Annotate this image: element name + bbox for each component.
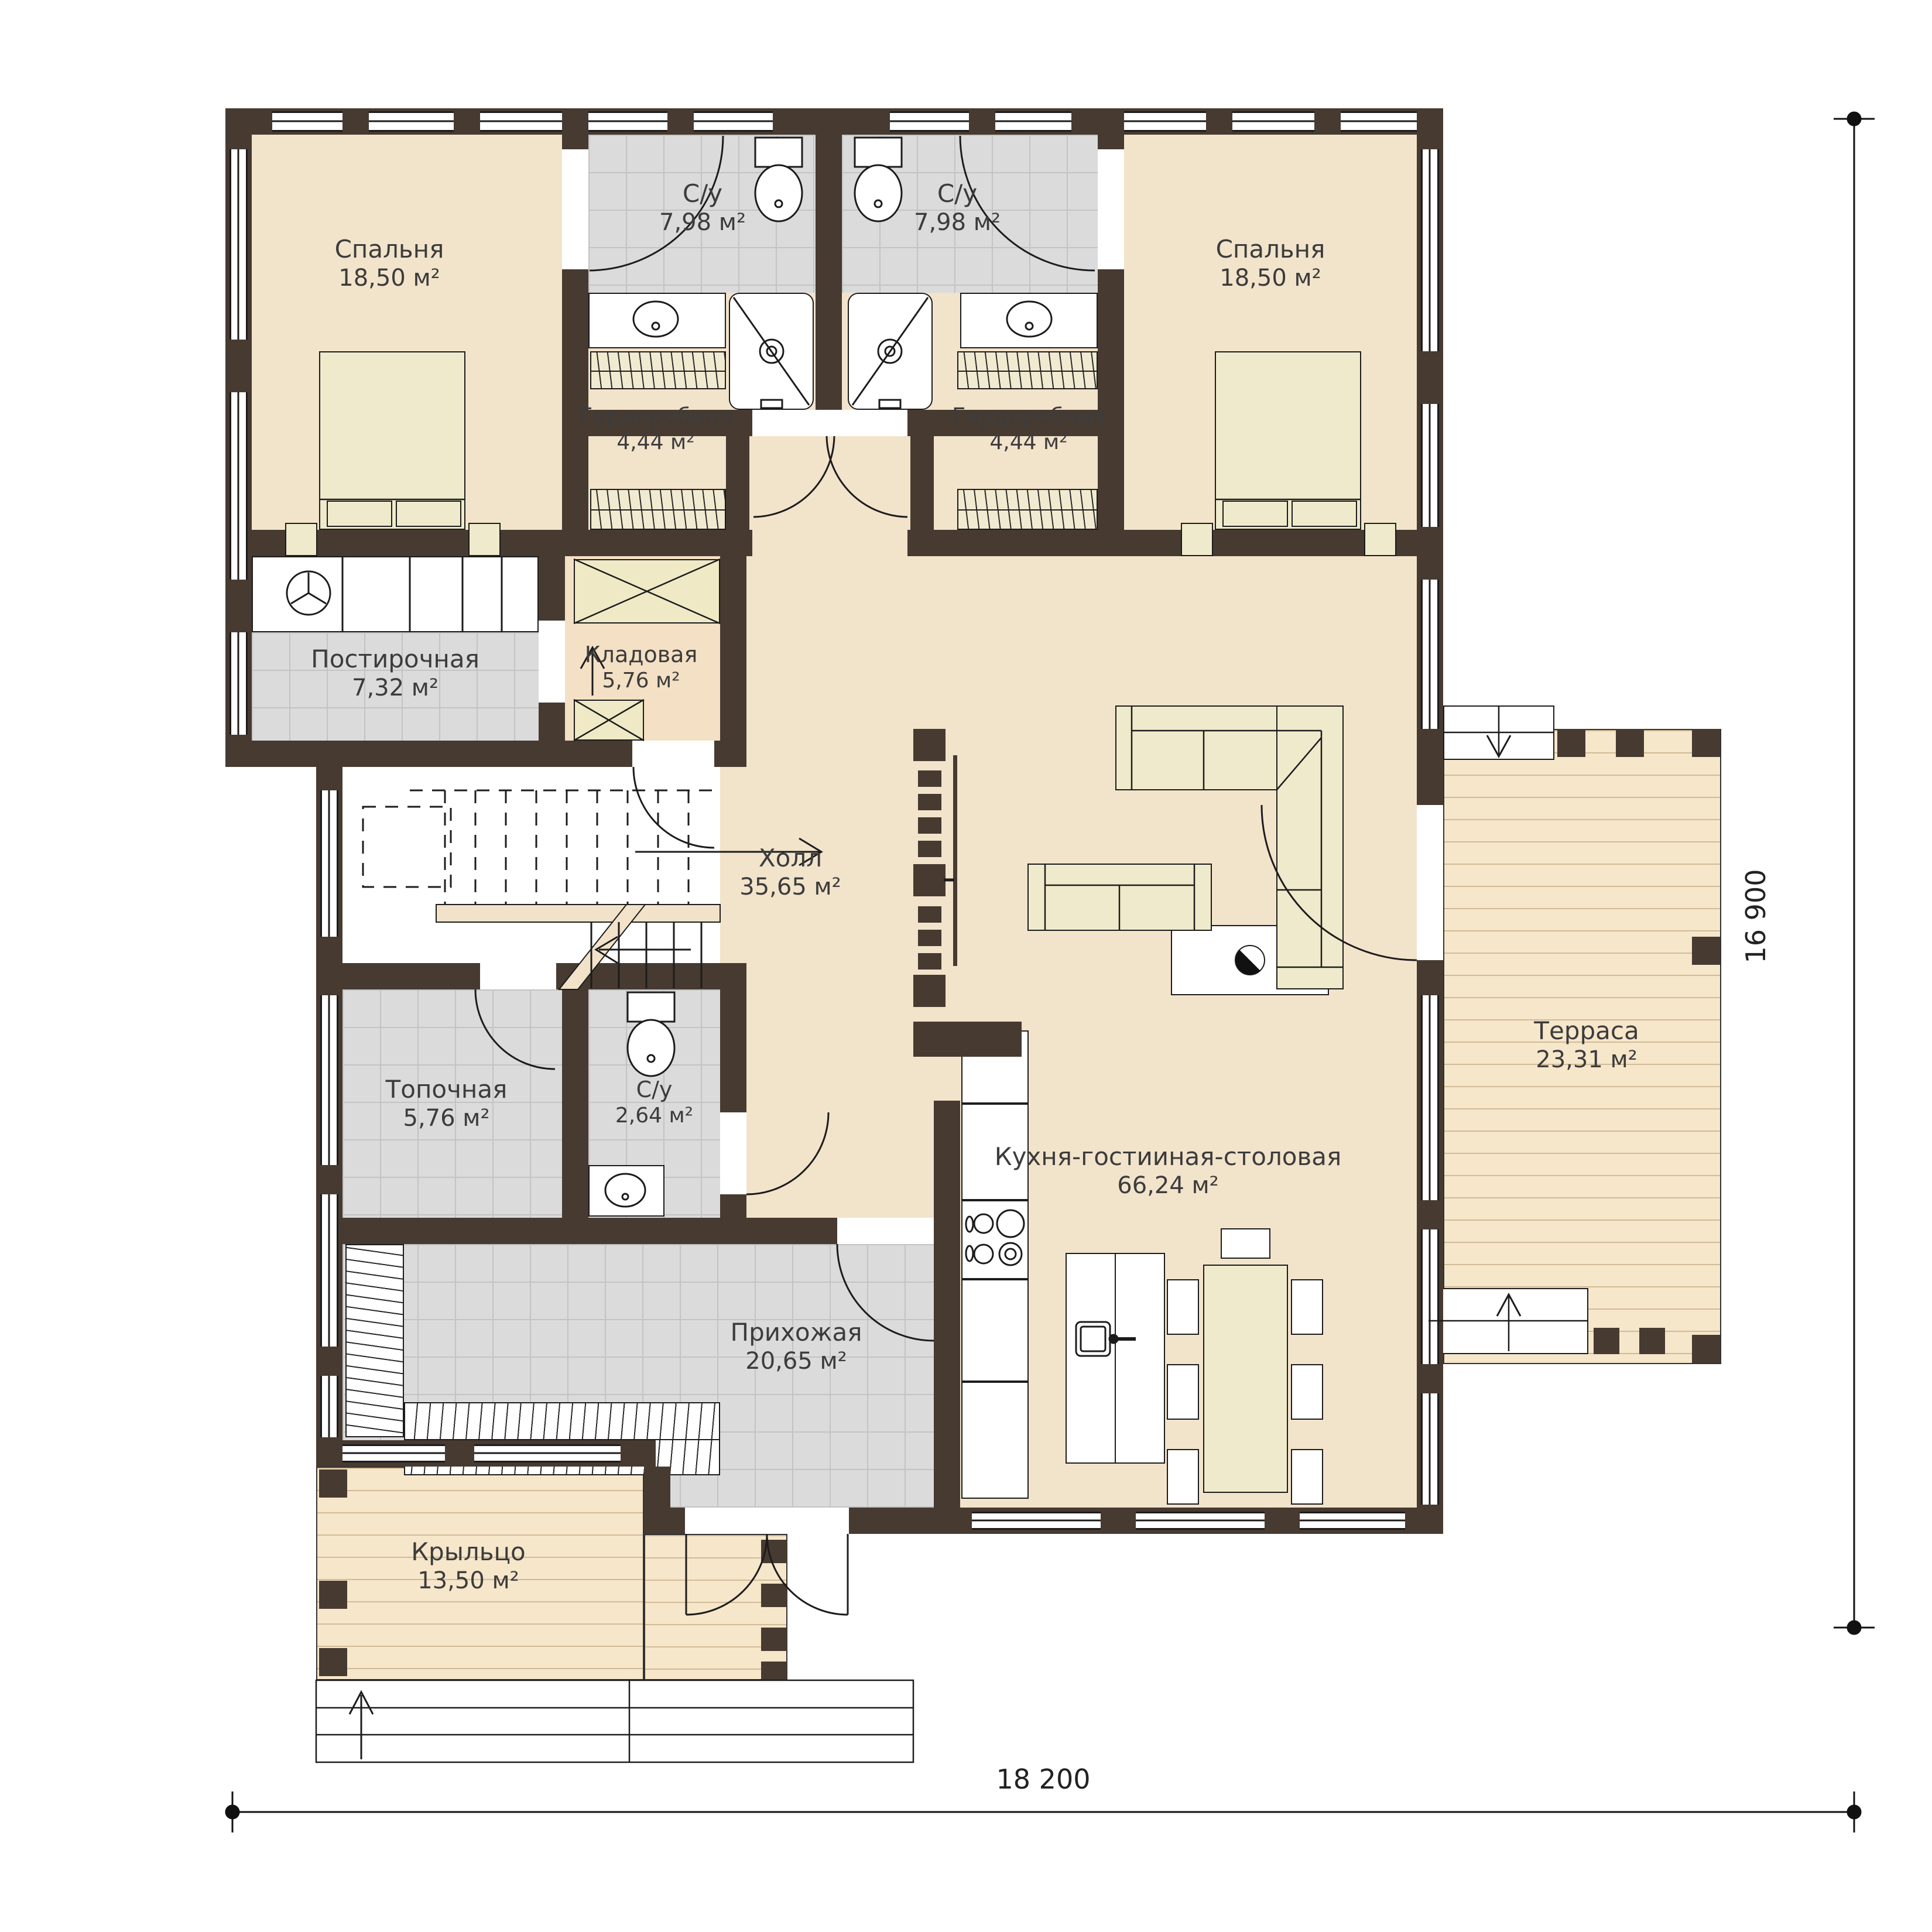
door-arc-boiler bbox=[475, 989, 555, 1069]
room-label-boiler: Топочная5,76 м² bbox=[331, 1074, 562, 1133]
door-arc-stairs bbox=[633, 767, 714, 848]
room-label-wardrobe-right: Гардеробная4,44 м² bbox=[935, 403, 1122, 455]
room-label-bathroom-small: С/у2,64 м² bbox=[585, 1076, 723, 1129]
shower-icon bbox=[852, 297, 928, 408]
dimension-width-label: 18 200 bbox=[996, 1763, 1091, 1795]
toilet-icon bbox=[628, 992, 674, 1076]
dimension-height-label: 16 900 bbox=[1740, 869, 1772, 964]
room-label-entry: Прихожая20,65 м² bbox=[673, 1317, 919, 1376]
sink-icon bbox=[1007, 302, 1051, 337]
door-arc-wardrobe-left bbox=[753, 436, 834, 517]
sink-icon bbox=[633, 302, 678, 337]
porch-steps bbox=[316, 1680, 913, 1762]
room-label-bedroom-right: Спальня18,50 м² bbox=[1147, 234, 1393, 293]
shower-icon bbox=[734, 297, 809, 408]
door-arc-entrance-right bbox=[767, 1534, 848, 1615]
room-label-bedroom-left: Спальня18,50 м² bbox=[266, 234, 512, 293]
door-arc-bath-small bbox=[746, 1112, 828, 1194]
door-arc-terrace bbox=[1262, 805, 1417, 960]
room-label-storage: Кладовая5,76 м² bbox=[556, 641, 726, 694]
door-arc-wardrobe-right bbox=[827, 436, 907, 517]
door-arc-entrance-left bbox=[686, 1534, 767, 1615]
room-label-hall: Холл35,65 м² bbox=[673, 843, 907, 902]
room-label-wardrobe-left: Гардеробная4,44 м² bbox=[562, 403, 749, 455]
room-label-kitchen-living: Кухня-гостииная-столовая66,24 м² bbox=[913, 1142, 1423, 1200]
room-label-terrace: Терраса23,31 м² bbox=[1464, 1016, 1710, 1074]
room-label-laundry: Постирочная7,32 м² bbox=[252, 644, 539, 703]
sink-icon bbox=[605, 1174, 645, 1207]
room-label-porch: Крыльцо13,50 м² bbox=[345, 1537, 591, 1595]
room-label-bathroom-right: С/у7,98 м² bbox=[852, 179, 1063, 237]
room-label-bathroom-left: С/у7,98 м² bbox=[597, 179, 808, 237]
kitchen-sink-icon bbox=[1076, 1253, 1136, 1464]
cooktop-icon bbox=[966, 1210, 1024, 1265]
floor-plan: 18 200 16 900 Спальня18,50 м² С/у7,98 м²… bbox=[0, 0, 1932, 1932]
